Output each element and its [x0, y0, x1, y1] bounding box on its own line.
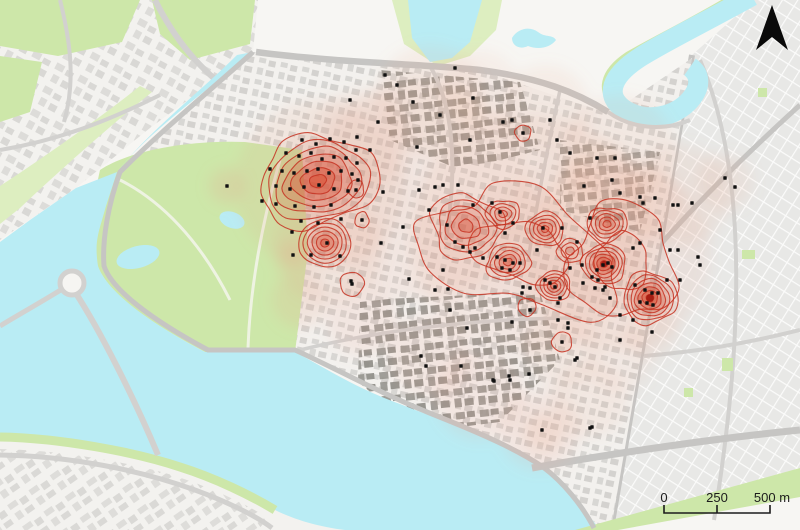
park-patch [758, 88, 767, 97]
scale-label-500m: 500 m [754, 490, 790, 505]
roundabout [60, 271, 84, 295]
park-patch [722, 358, 733, 371]
scale-label-0: 0 [660, 490, 667, 505]
scale-label-250: 250 [706, 490, 728, 505]
park-patch [684, 388, 693, 397]
map-frame: 0 250 500 m [0, 0, 800, 530]
park-patch [742, 250, 755, 259]
map-canvas: 0 250 500 m [0, 0, 800, 530]
